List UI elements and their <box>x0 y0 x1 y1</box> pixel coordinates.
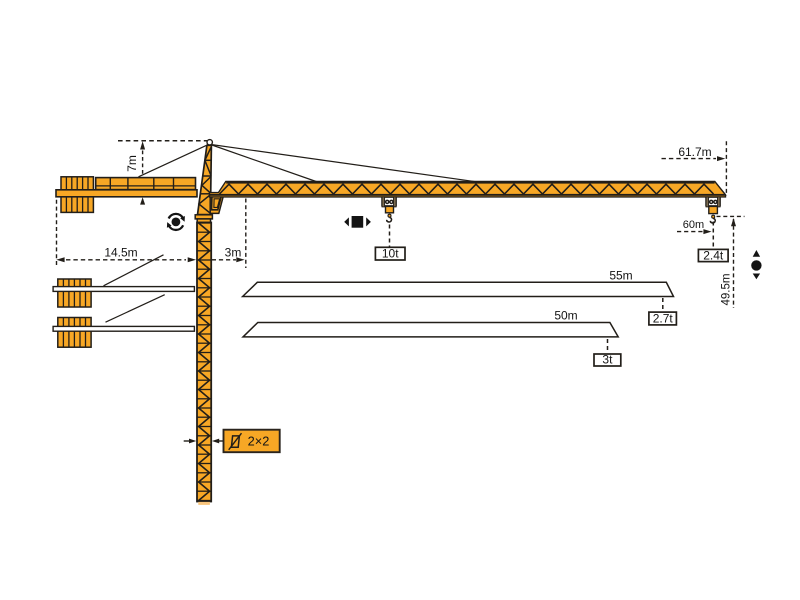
svg-text:3m: 3m <box>225 245 242 259</box>
svg-text:3t: 3t <box>602 353 613 367</box>
svg-text:55m: 55m <box>609 269 632 283</box>
svg-text:10t: 10t <box>382 247 399 261</box>
svg-text:2×2: 2×2 <box>248 433 270 448</box>
svg-text:49.5m: 49.5m <box>721 274 733 306</box>
svg-text:61.7m: 61.7m <box>678 145 711 159</box>
svg-text:2.4t: 2.4t <box>703 248 724 262</box>
svg-text:2.7t: 2.7t <box>653 311 674 325</box>
svg-text:14.5m: 14.5m <box>104 245 137 259</box>
svg-text:60m: 60m <box>683 219 704 231</box>
svg-text:7m: 7m <box>125 155 139 172</box>
svg-text:50m: 50m <box>554 308 577 322</box>
